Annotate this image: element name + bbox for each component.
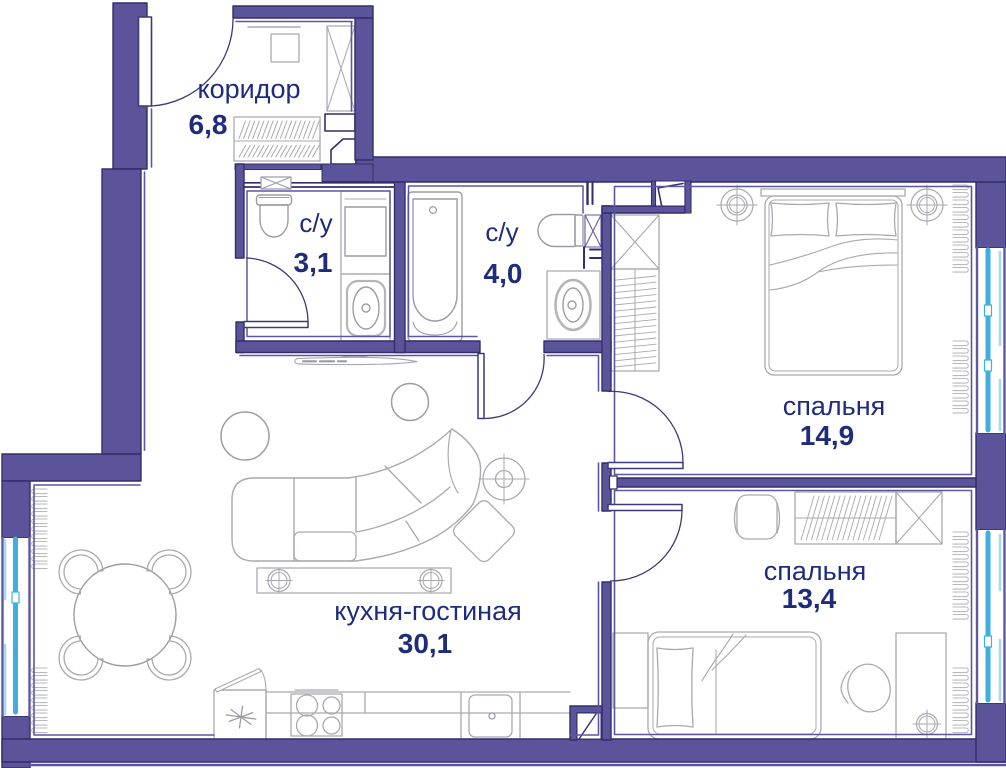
- svg-text:спальня: спальня: [783, 391, 886, 421]
- svg-text:коридор: коридор: [197, 74, 300, 104]
- svg-text:с/у: с/у: [485, 217, 518, 247]
- svg-text:13,4: 13,4: [782, 583, 837, 614]
- svg-text:14,9: 14,9: [800, 420, 855, 451]
- svg-text:6,8: 6,8: [189, 109, 228, 140]
- svg-text:с/у: с/у: [299, 208, 332, 238]
- svg-text:спальня: спальня: [764, 556, 867, 586]
- svg-text:4,0: 4,0: [484, 258, 523, 289]
- svg-text:кухня-гостиная: кухня-гостиная: [334, 596, 521, 626]
- svg-text:30,1: 30,1: [398, 628, 453, 659]
- svg-text:3,1: 3,1: [294, 247, 333, 278]
